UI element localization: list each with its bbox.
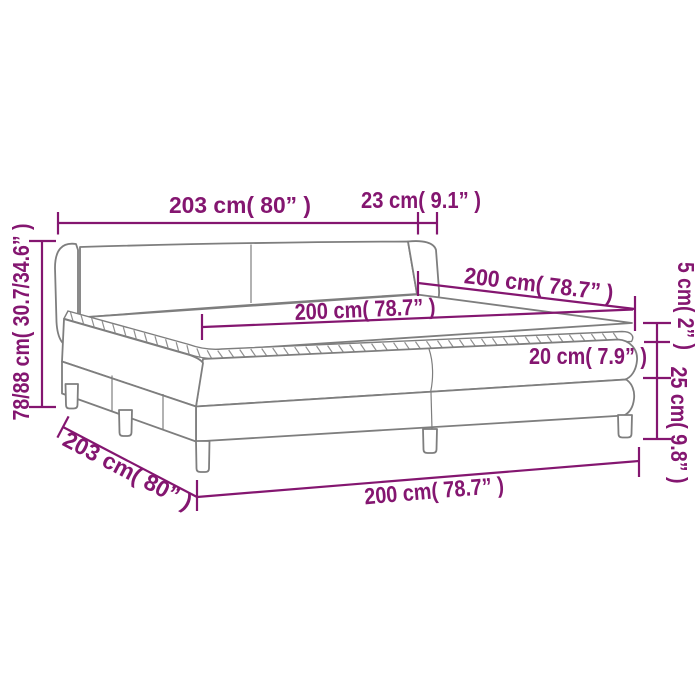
dim-headboard-depth: 23 cm( 9.1” ) xyxy=(361,187,481,235)
bed-leg xyxy=(423,429,437,453)
dim-label-length-right: 200 cm( 78.7” ) xyxy=(463,262,615,306)
bed-leg xyxy=(119,410,132,436)
dim-label-length-bottom: 200 cm( 78.7” ) xyxy=(363,472,505,510)
dim-label-base-height: 25 cm( 9.8” ) xyxy=(666,367,692,484)
bed-leg xyxy=(196,441,210,472)
dim-height-range: 78/88 cm( 30.7/34.6” ) xyxy=(8,224,56,421)
dimension-diagram: 203 cm( 80” ) 23 cm( 9.1” ) 78/88 cm( 30… xyxy=(0,0,700,700)
dim-length-bottom: 200 cm( 78.7” ) xyxy=(197,447,639,509)
dim-label-height-range: 78/88 cm( 30.7/34.6” ) xyxy=(8,224,34,421)
bed-leg xyxy=(66,384,79,409)
dim-label-headboard-width: 203 cm( 80” ) xyxy=(169,192,311,218)
dim-label-frame-width-side: 203 cm( 80” ) xyxy=(59,426,197,515)
bed-leg xyxy=(618,415,632,438)
dim-label-topper-height: 5 cm( 2” ) xyxy=(673,262,699,350)
dim-label-mattress-height: 20 cm( 7.9” ) xyxy=(529,343,647,369)
bed-dimension-figure: 203 cm( 80” ) 23 cm( 9.1” ) 78/88 cm( 30… xyxy=(0,0,700,700)
dim-label-headboard-depth: 23 cm( 9.1” ) xyxy=(361,187,481,213)
dim-height-bracket: 5 cm( 2” ) 25 cm( 9.8” ) xyxy=(643,262,699,484)
